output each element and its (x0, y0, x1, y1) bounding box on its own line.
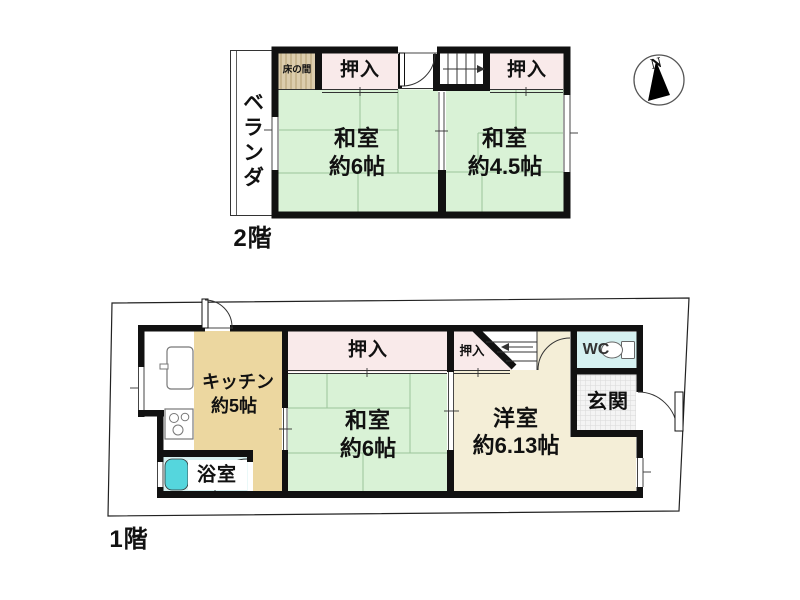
youshitsu-name: 洋室 (493, 408, 539, 430)
closet-1f-label: 押入 (348, 341, 388, 360)
washitsu45-2f-size: 約4.5帖 (468, 156, 543, 178)
washitsu6-2f-size: 約6帖 (329, 156, 385, 178)
washitsu45-2f-name: 和室 (482, 128, 528, 150)
youshitsu-size: 約6.13帖 (473, 435, 560, 457)
kitchen-size: 約5帖 (211, 397, 257, 415)
bathroom-label: 浴室 (197, 466, 237, 485)
window-youshitsu-east (636, 458, 651, 487)
stair-hall-door-2f (398, 45, 437, 86)
kitchen-name: キッチン (202, 373, 274, 391)
closet-left-2f-label: 押入 (340, 61, 380, 80)
tokonoma-label: 床の間 (283, 65, 312, 75)
veranda-label: ベランダ (242, 91, 263, 191)
stove-icon (165, 409, 193, 439)
closet-right-2f-label: 押入 (507, 61, 547, 80)
kitchen-back-door (202, 299, 233, 328)
window-east-2f (563, 95, 578, 172)
washitsu6-1f-name: 和室 (345, 410, 391, 432)
floor-plan-drawing: N (0, 0, 800, 600)
window-bathroom-west (156, 462, 164, 487)
compass-icon: N (634, 55, 684, 105)
bathtub-icon (165, 459, 188, 490)
closet-small-label: 押入 (459, 345, 484, 358)
genkan-label: 玄関 (587, 392, 629, 412)
stairs-2f (443, 53, 485, 84)
window-kitchen-west (130, 367, 145, 410)
washitsu6-2f-name: 和室 (334, 128, 380, 150)
wc-label: WC (583, 342, 610, 358)
kitchen-sink-icon (160, 347, 193, 389)
floor1-label: 1階 (109, 528, 148, 552)
entrance-door (636, 392, 683, 431)
floor2-label: 2階 (233, 227, 272, 251)
washitsu6-1f-size: 約6帖 (340, 438, 396, 460)
floor-plan-canvas: N (0, 0, 800, 600)
